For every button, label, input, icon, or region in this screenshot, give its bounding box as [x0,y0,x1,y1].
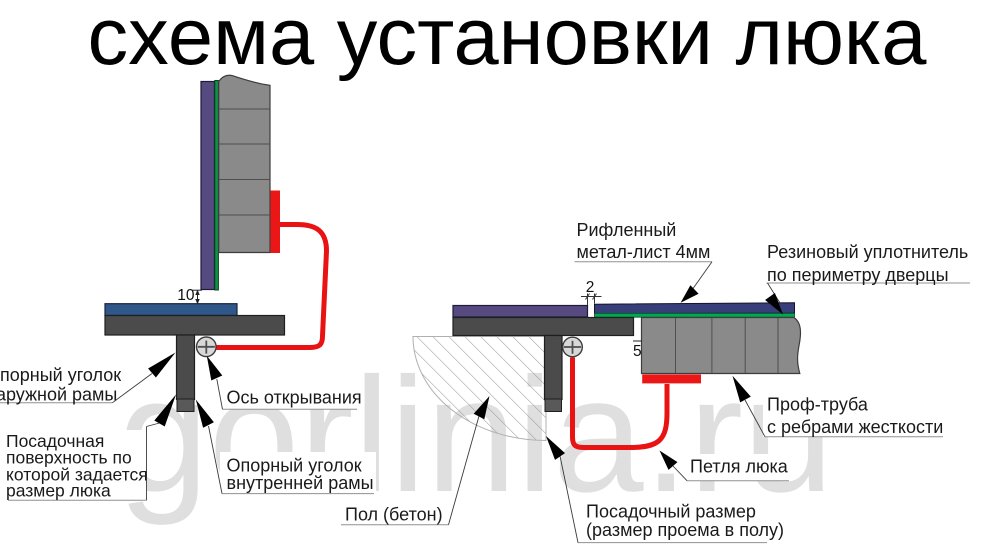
svg-text:Проф-труба: Проф-труба [767,395,869,415]
svg-text:размер люка: размер люка [6,481,111,501]
svg-text:Петля люка: Петля люка [690,457,789,477]
svg-text:схема установки люка: схема установки люка [88,0,928,82]
svg-text:внутренней рамы: внутренней рамы [227,473,374,493]
svg-text:5: 5 [633,343,642,360]
svg-text:метал-лист 4мм: метал-лист 4мм [577,242,711,262]
svg-text:Рифленный: Рифленный [577,220,677,240]
svg-text:Пол (бетон): Пол (бетон) [345,505,443,525]
svg-text:2: 2 [586,279,595,296]
svg-text:(размер проема в полу): (размер проема в полу) [586,520,784,540]
svg-text:Резиновый уплотнитель: Резиновый уплотнитель [767,242,968,262]
svg-text:Посадочный размер: Посадочный размер [586,502,756,522]
svg-text:Ось открывания: Ось открывания [227,388,362,408]
svg-text:Опорный уголок: Опорный уголок [0,365,121,385]
svg-text:наружной рамы: наружной рамы [0,384,117,404]
svg-text:10: 10 [177,287,195,304]
svg-text:с ребрами жесткости: с ребрами жесткости [767,417,943,437]
svg-text:по периметру дверцы: по периметру дверцы [767,265,949,285]
